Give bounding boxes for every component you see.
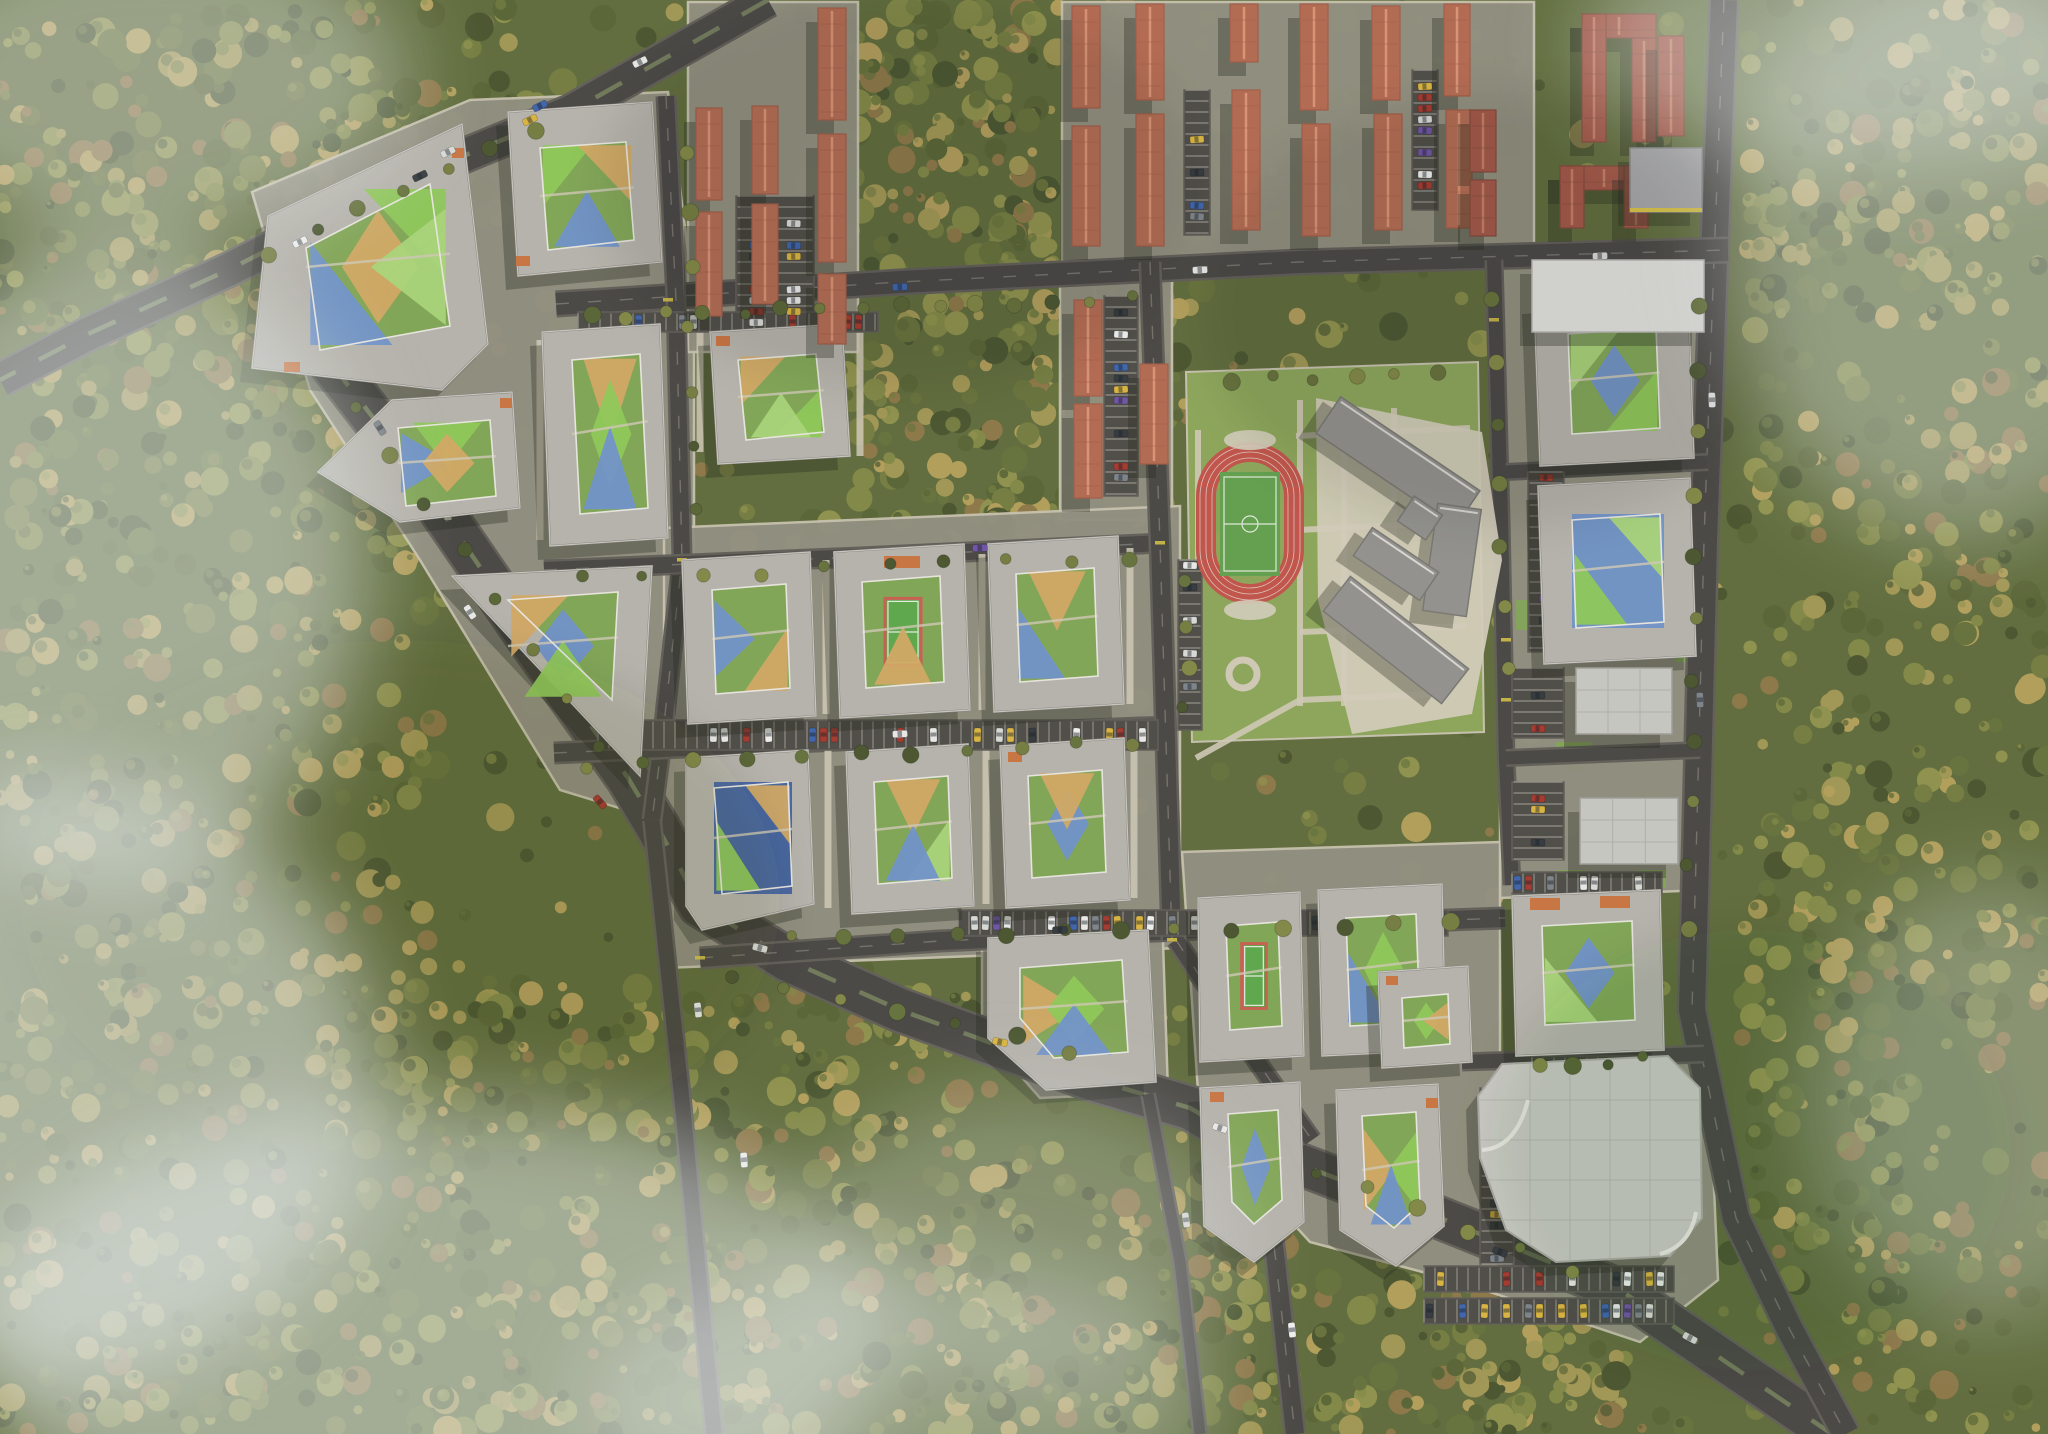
masterplan-aerial-render: Aerial masterplan render - residential d… (0, 0, 2048, 1434)
masterplan-scene-canvas: Aerial masterplan render - residential d… (0, 0, 2048, 1434)
